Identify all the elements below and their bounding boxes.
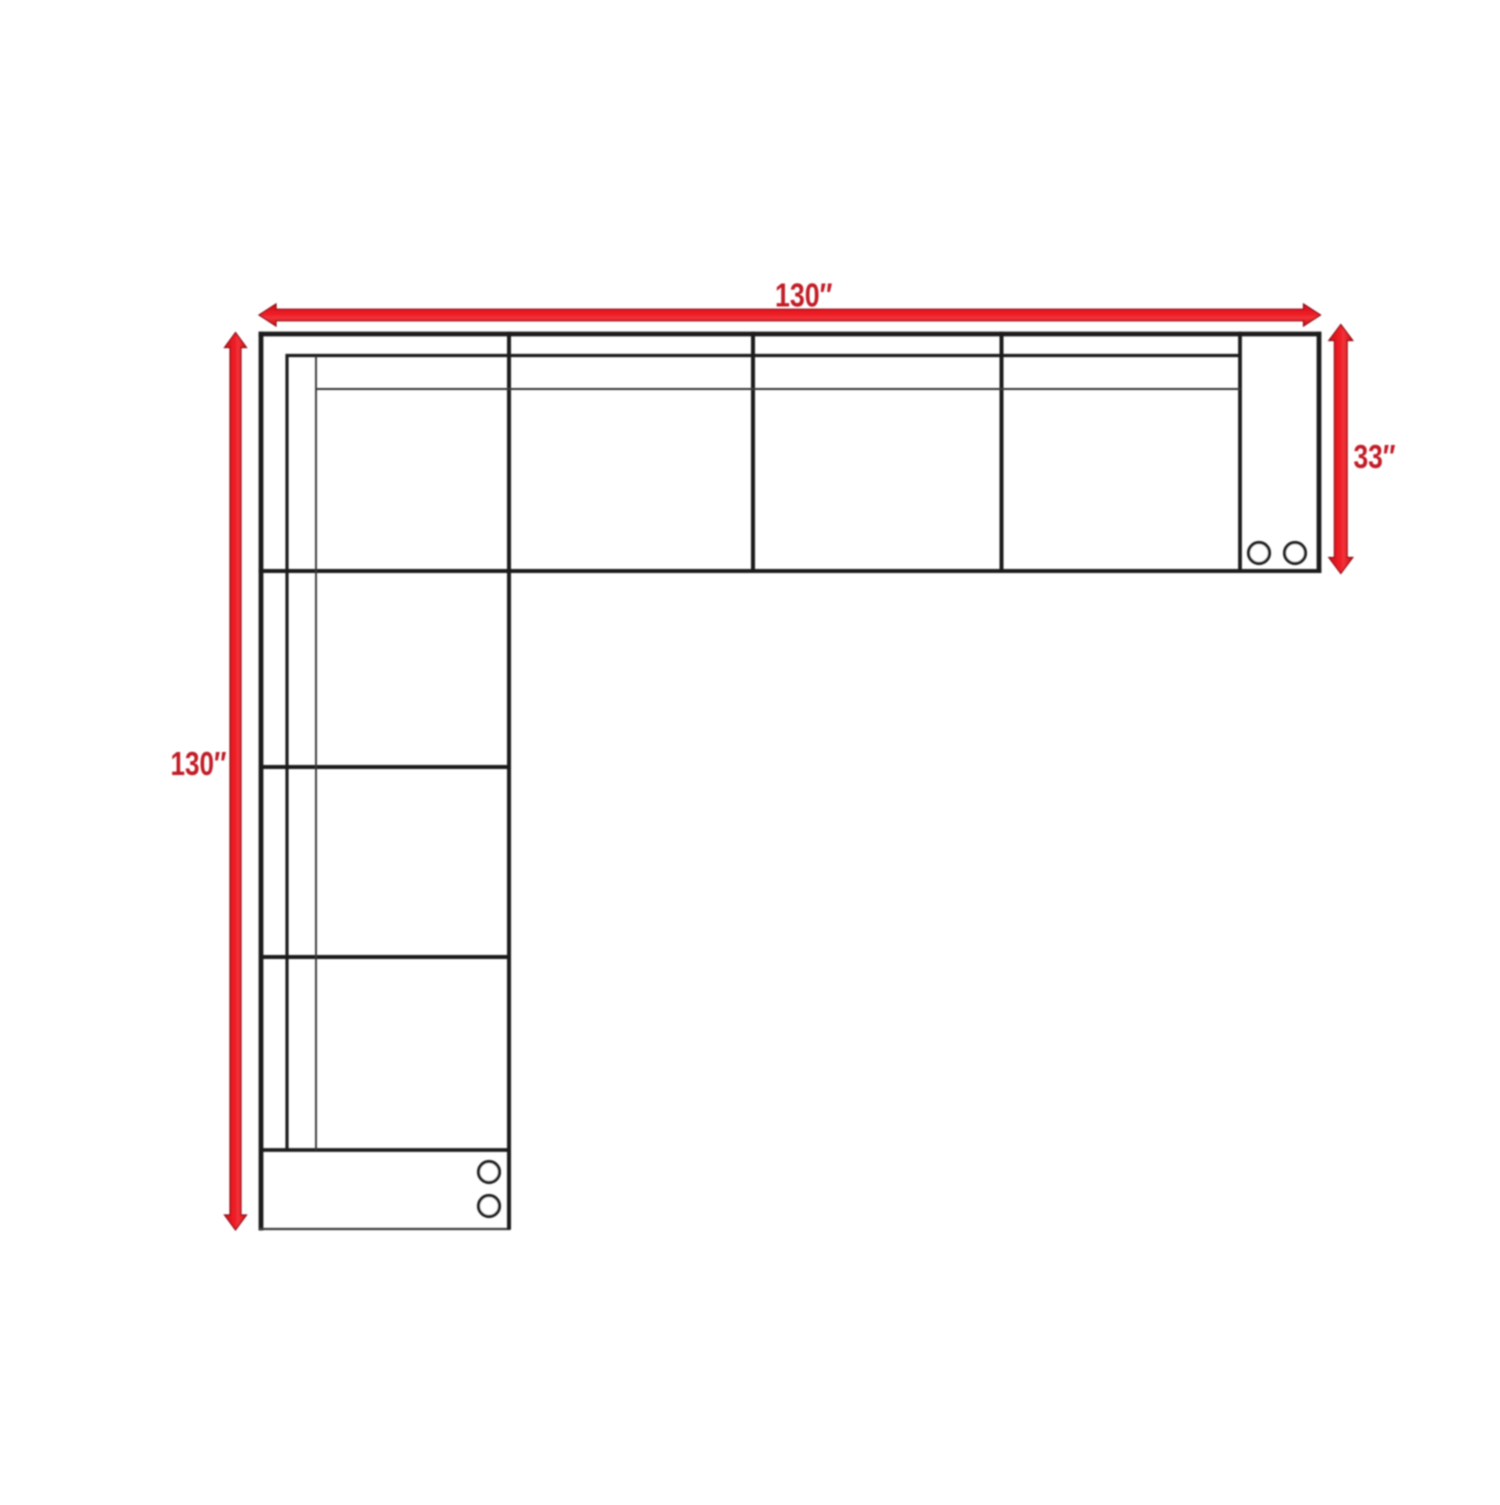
svg-text:130″: 130″	[775, 277, 833, 314]
svg-text:33″: 33″	[1354, 438, 1396, 475]
svg-text:130″: 130″	[171, 745, 227, 782]
